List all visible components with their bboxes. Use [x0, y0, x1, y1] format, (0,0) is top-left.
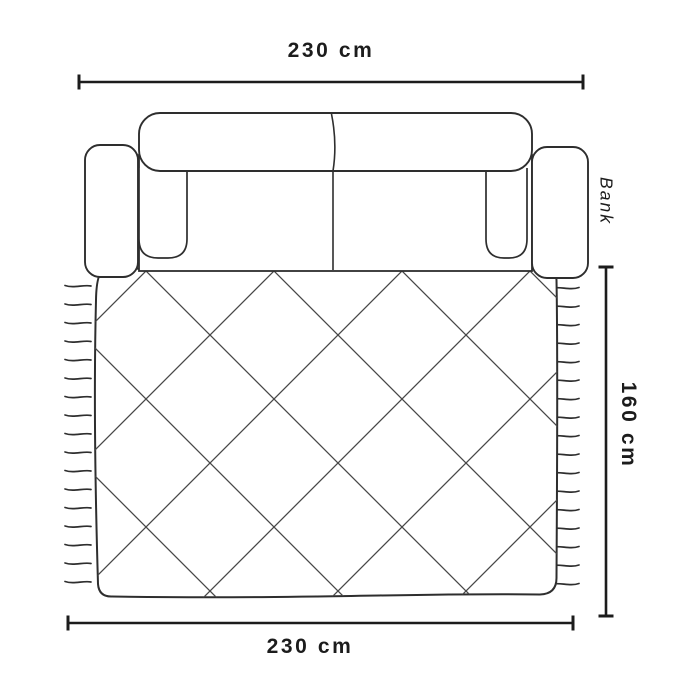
- sofa-rug-illustration: [0, 0, 700, 700]
- rug: [63, 266, 582, 600]
- dimension-line-top: [79, 75, 583, 90]
- bottom-width-label: 230 cm: [267, 635, 354, 659]
- depth-label: 160 cm: [616, 382, 640, 469]
- rug-fringe-left: [63, 277, 92, 593]
- sofa: [85, 113, 588, 278]
- dimension-diagram: 230 cm 230 cm 160 cm Bank: [0, 0, 700, 700]
- sofa-armrest-right: [532, 147, 588, 278]
- rug-fringe-right: [555, 279, 582, 593]
- rug-lattice: [88, 266, 560, 600]
- top-width-label: 230 cm: [288, 39, 375, 63]
- dimension-line-right: [599, 267, 614, 616]
- sofa-seat: [139, 155, 532, 271]
- item-label: Bank: [596, 177, 617, 225]
- sofa-seat-cushion-left: [139, 168, 187, 258]
- sofa-armrest-left: [85, 145, 138, 277]
- dimension-line-bottom: [68, 616, 573, 631]
- sofa-seat-cushion-right: [486, 168, 527, 258]
